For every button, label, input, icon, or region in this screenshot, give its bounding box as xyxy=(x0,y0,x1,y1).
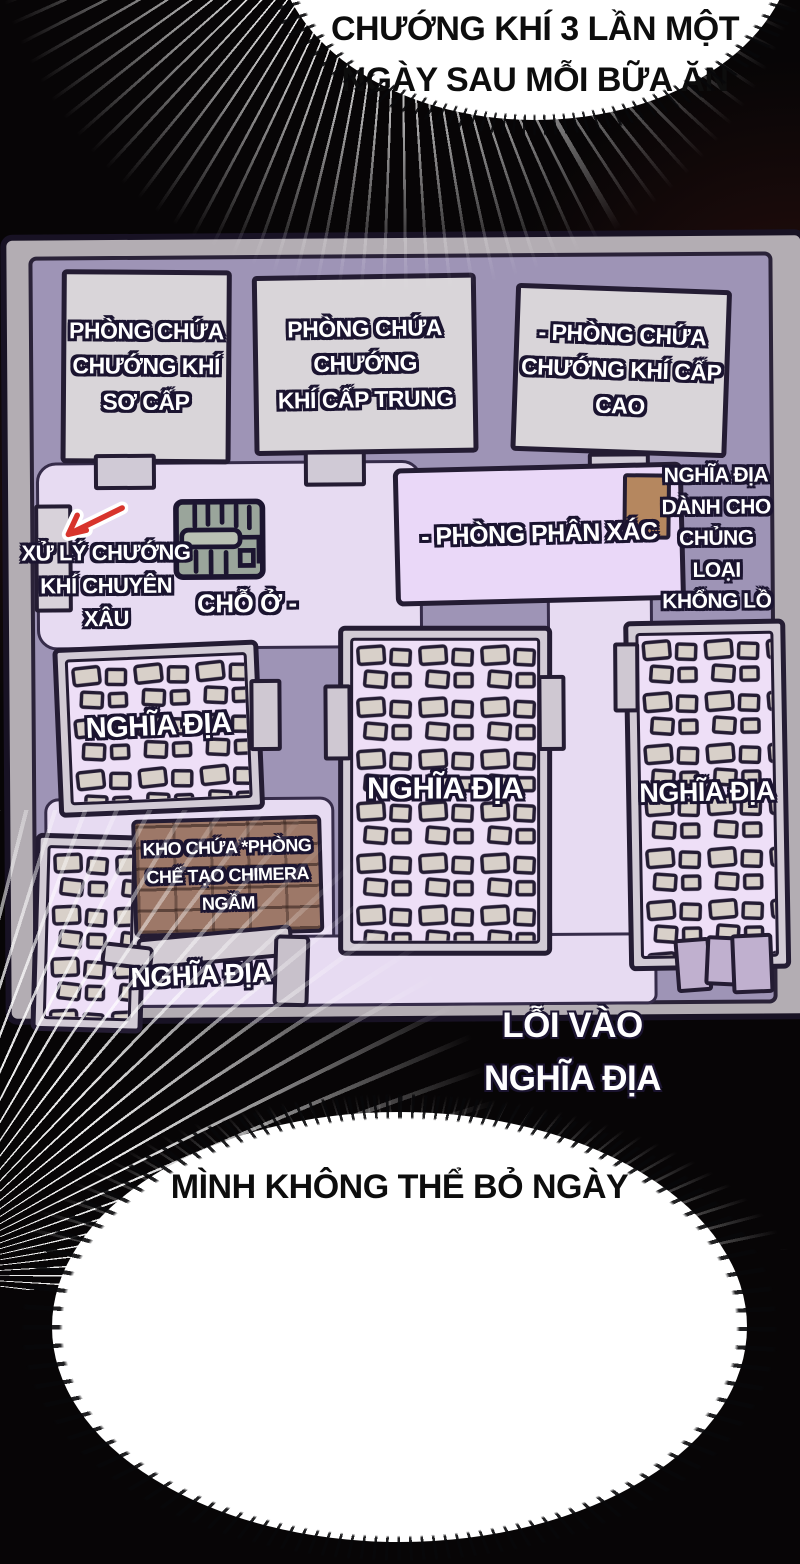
dwelling-label: CHỖ Ở - xyxy=(187,583,307,624)
room-miasma-primary: PHÒNG CHỨA CHƯỚNG KHÍ SƠ CẤP xyxy=(61,269,232,464)
room-dissection-label: - PHÒNG PHÂN XÁC xyxy=(421,512,658,557)
room-miasma-mid-label: PHÒNG CHỨA CHƯỚNG KHÍ CẤP TRUNG xyxy=(257,309,473,419)
bottom-speech-text: MÌNH KHÔNG THỂ BỎ NGÀY xyxy=(52,1168,747,1207)
cemetery-right: NGHĨA ĐỊA xyxy=(623,619,791,972)
room-miasma-mid: PHÒNG CHỨA CHƯỚNG KHÍ CẤP TRUNG xyxy=(252,273,479,456)
room-miasma-primary-label: PHÒNG CHỨA CHƯỚNG KHÍ SƠ CẤP xyxy=(68,313,223,421)
giant-cemetery-label: NGHĨA ĐỊA DÀNH CHO CHỦNG LOẠI KHỔNG LỒ xyxy=(654,459,779,617)
room-miasma-high: - PHÒNG CHỨA CHƯỚNG KHÍ CẤP CAO xyxy=(510,283,732,458)
bottom-speech-bubble: MÌNH KHÔNG THỂ BỎ NGÀY xyxy=(52,1112,747,1542)
room-dissection: - PHÒNG PHÂN XÁC xyxy=(393,462,686,607)
cemetery-entrance-label: LỖI VÀO NGHĨA ĐỊA xyxy=(440,1000,705,1105)
comic-page: { "scene": { "top_bubble_text": "CHƯỚNG … xyxy=(0,0,800,1200)
cemetery-bottom-label: NGHĨA ĐỊA xyxy=(103,949,300,1001)
chimera-workshop-label: KHO CHỨA *PHÒNG CHẾ TẠO CHIMERA NGẦM xyxy=(142,832,313,920)
top-speech-bubble: CHƯỚNG KHÍ 3 LẦN MỘT NGÀY SAU MỖI BỮA ĂN xyxy=(275,0,795,120)
cemetery-gate xyxy=(323,684,352,760)
room-miasma-high-label: - PHÒNG CHỨA CHƯỚNG KHÍ CẤP CAO xyxy=(519,314,723,428)
chimera-workshop: KHO CHỨA *PHÒNG CHẾ TẠO CHIMERA NGẦM xyxy=(131,815,324,938)
dungeon-map: PHÒNG CHỨA CHƯỚNG KHÍ SƠ CẤP PHÒNG CHỨA … xyxy=(0,229,800,1025)
cemetery-center-label: NGHĨA ĐỊA xyxy=(331,764,559,812)
cemetery-gate xyxy=(613,642,639,712)
cemetery-gate xyxy=(249,679,282,751)
top-speech-text: CHƯỚNG KHÍ 3 LẦN MỘT NGÀY SAU MỖI BỮA ĂN xyxy=(275,4,795,106)
miasma-processing-label: XỬ LÝ CHƯỚNG KHÍ CHUYÊN XÂU xyxy=(18,535,194,635)
cemetery-left: NGHĨA ĐỊA xyxy=(52,639,265,817)
cemetery-left-label: NGHĨA ĐỊA xyxy=(48,699,270,753)
room-connector xyxy=(304,450,366,486)
room-connector xyxy=(94,454,156,490)
crate xyxy=(730,933,774,995)
cemetery-center: NGHĨA ĐỊA xyxy=(338,626,552,956)
cemetery-right-label: NGHĨA ĐỊA xyxy=(619,770,796,815)
cemetery-bottom-left xyxy=(30,833,147,1034)
cemetery-gate xyxy=(537,675,566,751)
